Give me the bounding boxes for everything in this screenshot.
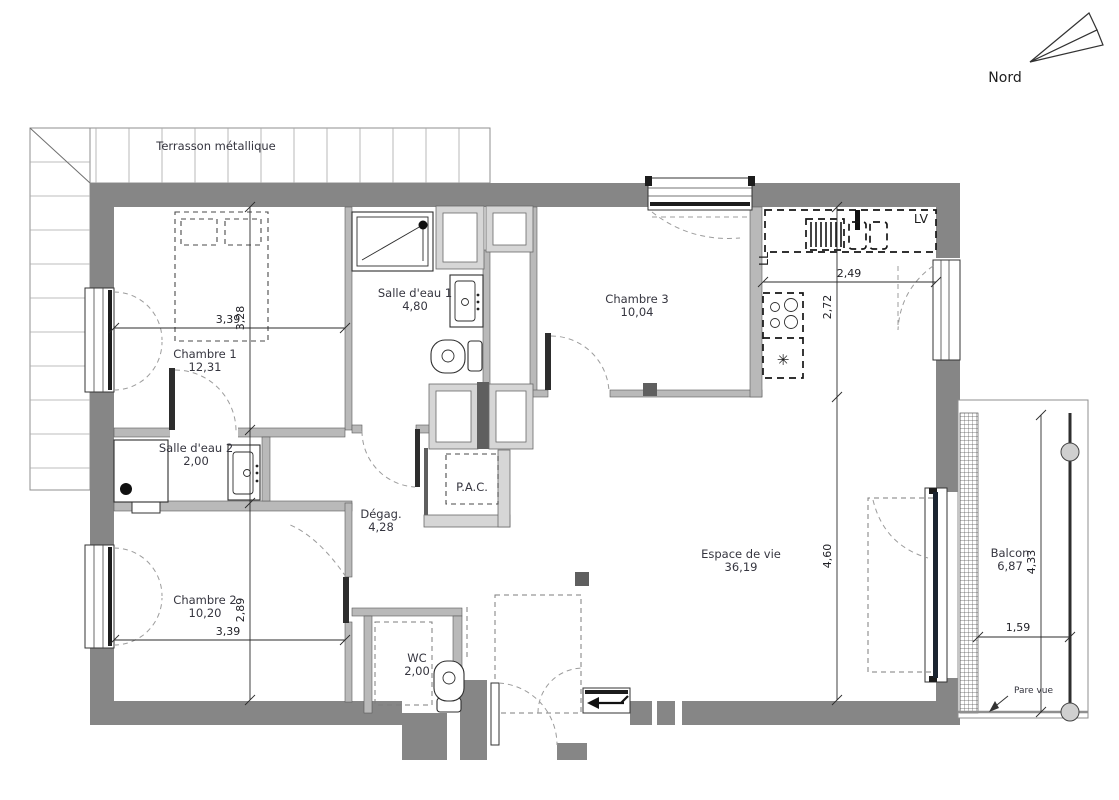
closet-divider-column	[477, 382, 489, 449]
wall-right-bottom	[936, 678, 960, 725]
door-chambre1	[169, 368, 236, 431]
wall-kitchen-left	[750, 207, 762, 397]
pillow	[181, 219, 217, 245]
hob-and-fridge: ✳	[763, 293, 803, 378]
kitchen-counter	[765, 210, 936, 252]
north-label: Nord	[988, 70, 1021, 86]
room-label-espace-de-vie: Espace de vie	[701, 547, 781, 561]
dish-rack	[806, 219, 844, 250]
sliding-panel-dashed	[868, 498, 933, 672]
wall-top	[90, 183, 960, 207]
floor-plan: P.A.C.	[0, 0, 1119, 800]
bay-window-living	[868, 488, 947, 682]
floor-plan-page: P.A.C.	[0, 0, 1119, 800]
svg-text:2,49: 2,49	[837, 267, 862, 280]
room-area-salle-eau1: 4,80	[402, 299, 428, 313]
shower-head	[419, 221, 428, 230]
room-labels: Chambre 1 12,31 Salle d'eau 1 4,80 Chamb…	[155, 139, 1029, 678]
closet-mid-1-inner	[436, 391, 471, 442]
wall-stub-sde1-left	[352, 425, 362, 433]
terrace-label: Terrasson métallique	[155, 139, 276, 153]
fridge-snowflake-icon: ✳	[777, 351, 790, 369]
room-area-wc: 2,00	[404, 664, 430, 678]
partitions	[114, 207, 762, 713]
wall-joint	[652, 701, 657, 725]
room-area-degagement: 4,28	[368, 520, 394, 534]
pac-label: P.A.C.	[456, 480, 488, 494]
kitchen: LV LL ✳	[756, 210, 936, 378]
sink-salle-eau1	[450, 275, 483, 327]
room-label-balcon: Balcon	[991, 546, 1030, 560]
room-area-chambre3: 10,04	[621, 305, 654, 319]
kitchen-faucet	[855, 210, 860, 230]
wall-wc-top	[352, 608, 462, 616]
wall-joint	[675, 701, 682, 725]
svg-text:3,39: 3,39	[216, 625, 241, 638]
railing-post	[1061, 703, 1079, 721]
room-area-espace-de-vie: 36,19	[725, 560, 758, 574]
door-salle-eau1	[362, 429, 420, 487]
hob-burner	[785, 299, 798, 312]
toilet-wc	[434, 661, 464, 712]
wall-chambre2-right-upper	[345, 503, 352, 577]
column-chambre3	[643, 383, 657, 396]
door-hall	[491, 683, 557, 745]
kitchen-sink	[849, 222, 887, 249]
washing-machine-label: LL	[756, 252, 771, 266]
wall-wc-left	[364, 616, 372, 713]
pac-wall-left	[424, 448, 428, 518]
svg-text:1,59: 1,59	[1006, 621, 1031, 634]
hob-burner	[771, 319, 780, 328]
hob-burner	[771, 303, 780, 312]
room-area-chambre1: 12,31	[189, 360, 222, 374]
pare-vue-label: Pare vue	[1014, 686, 1053, 696]
closet-top-2-inner	[493, 213, 526, 245]
room-area-salle-eau2: 2,00	[183, 454, 209, 468]
room-label-chambre1: Chambre 1	[173, 347, 236, 361]
pac-unit	[446, 454, 498, 504]
terrace-top-band	[30, 128, 490, 183]
window-chambre3	[645, 176, 755, 238]
shower-drain	[120, 483, 132, 495]
wall-chambre2-right-lower	[345, 622, 352, 702]
closet-mid-2-inner	[496, 391, 526, 442]
window-kitchen	[898, 260, 960, 360]
dim-chambre2-width: 3,39	[109, 625, 350, 645]
wall-salle-eau2-right	[262, 437, 270, 501]
room-area-chambre2: 10,20	[189, 606, 222, 620]
room-label-degagement: Dégag.	[360, 507, 401, 521]
door-chambre3	[545, 333, 609, 392]
room-label-wc: WC	[407, 651, 426, 665]
wall-entry-step	[557, 743, 587, 760]
outer-walls	[90, 183, 960, 760]
wall-chambre1-right	[345, 207, 352, 430]
room-label-salle-eau2: Salle d'eau 2	[159, 441, 233, 455]
window-chambre1	[85, 288, 162, 392]
closet-top-1-inner	[443, 213, 477, 262]
terrace-left-band	[30, 128, 90, 490]
svg-text:4,60: 4,60	[821, 544, 834, 569]
room-label-salle-eau1: Salle d'eau 1	[378, 286, 452, 300]
svg-text:2,72: 2,72	[821, 295, 834, 320]
wall-right-mid	[936, 360, 960, 492]
hob-burner	[785, 316, 798, 329]
wall-right-top	[936, 183, 960, 258]
wall-chambre3-bottom	[610, 390, 762, 397]
north-arrow: Nord	[988, 13, 1103, 86]
pac-wall-bottom	[424, 515, 510, 527]
svg-text:3,28: 3,28	[234, 306, 247, 331]
column-living	[575, 572, 589, 586]
shower-salle-eau1	[352, 212, 433, 271]
toilet-salle-eau1	[431, 340, 482, 373]
room-label-chambre3: Chambre 3	[605, 292, 668, 306]
doors	[169, 333, 630, 745]
room-label-chambre2: Chambre 2	[173, 593, 236, 607]
dishwasher-label: LV	[914, 211, 929, 226]
wall-entry-pier-mid	[460, 680, 487, 760]
privacy-screen-hatch	[960, 413, 978, 713]
dim-cuisine-width: 2,49	[758, 267, 941, 287]
dim-chambre1-width: 3,39	[109, 313, 350, 333]
railing-post	[1061, 443, 1079, 461]
entry-door	[538, 668, 630, 713]
balcony: Pare vue	[958, 400, 1088, 721]
wall-entry-pier-left	[402, 713, 447, 760]
room-area-balcon: 6,87	[997, 559, 1023, 573]
door-opening-chambre1	[170, 427, 238, 438]
pillow	[225, 219, 261, 245]
pac-wall-right	[498, 450, 510, 527]
entry-zone	[495, 595, 581, 713]
door-chambre2	[288, 524, 349, 623]
window-chambre2	[85, 545, 162, 648]
